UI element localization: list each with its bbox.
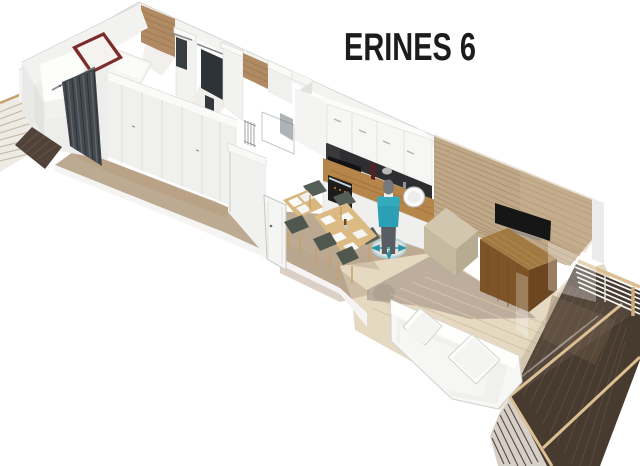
svg-text:ERINES 6: ERINES 6 — [344, 26, 476, 69]
